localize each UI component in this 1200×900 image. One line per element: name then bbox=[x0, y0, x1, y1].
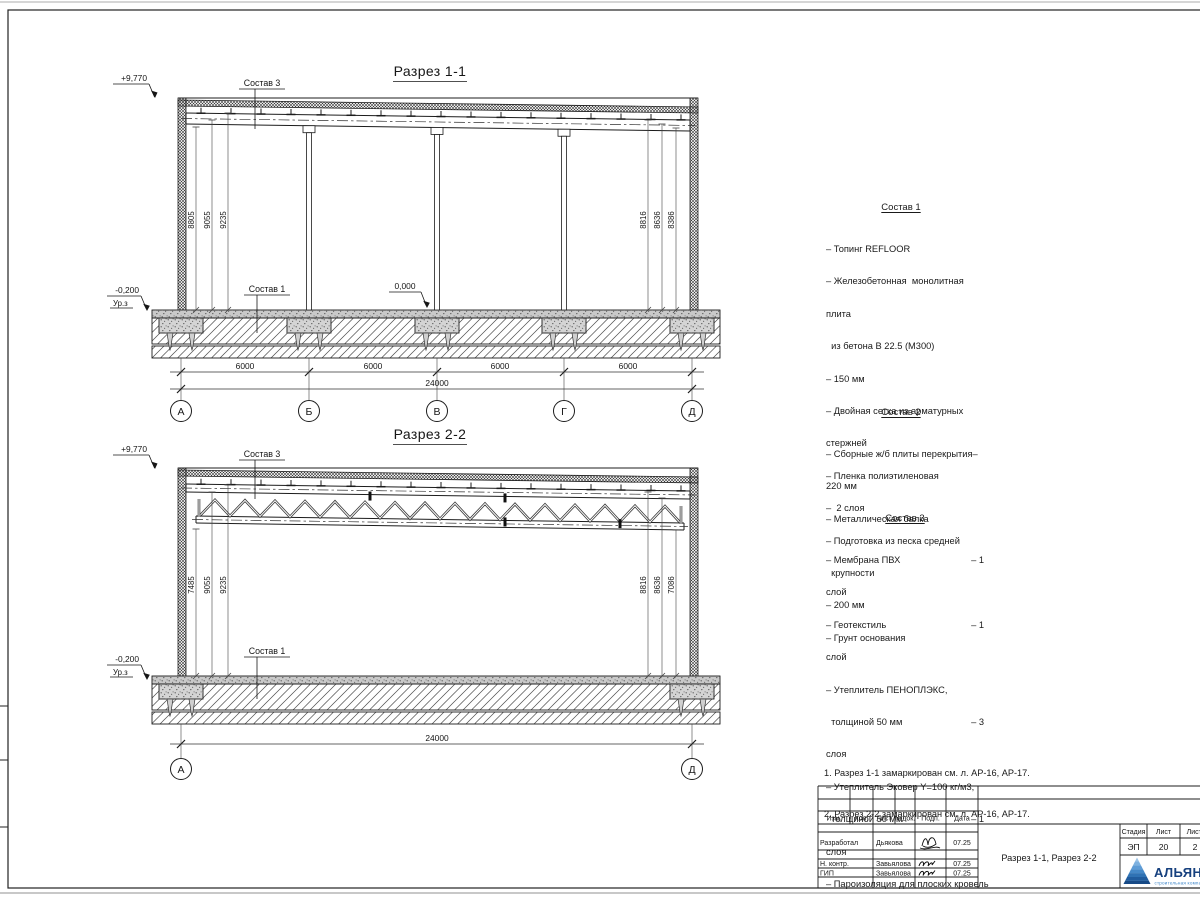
company-subtitle: строительная компания bbox=[1155, 881, 1200, 886]
axis-label: Д bbox=[688, 764, 695, 776]
section-2-title: Разрез 2-2 bbox=[394, 426, 467, 442]
bay-dim: 6000 bbox=[491, 361, 510, 371]
company-name: АЛЬЯНС bbox=[1154, 865, 1200, 880]
sheet-label: Лист bbox=[1156, 829, 1172, 836]
axis-label: В bbox=[433, 406, 440, 418]
elevation-mark-zero: 0,000 bbox=[395, 281, 416, 291]
sostav-3-spec: Состав 3 – Мембрана ПВХ– 1 слой – Геотек… bbox=[826, 492, 984, 900]
spec-line: слой bbox=[826, 652, 984, 663]
company-logo-icon bbox=[1123, 858, 1151, 885]
dim-label: 8636 bbox=[653, 576, 662, 593]
axis-label: Б bbox=[306, 406, 313, 418]
sheet-notes: 1. Разрез 1-1 замаркирован см. л. АР-16,… bbox=[824, 740, 1030, 835]
dim-label: 8386 bbox=[667, 211, 676, 228]
spec-line: из бетона В 22.5 (М300) bbox=[826, 341, 976, 352]
spec-line: слой bbox=[826, 587, 984, 598]
sostav3-callout: Состав 3 bbox=[244, 78, 281, 88]
axis-label: А bbox=[177, 764, 184, 776]
dim-label: 7485 bbox=[187, 576, 196, 594]
elevation-mark-top: +9,770 bbox=[121, 73, 147, 83]
bay-dim: 6000 bbox=[236, 361, 255, 371]
spec-line: – Железобетонная монолитная bbox=[826, 276, 976, 287]
spec-line: – Пароизоляция для плоских кровель bbox=[826, 879, 984, 890]
wall-right bbox=[690, 98, 698, 310]
sheet-value: 20 bbox=[1159, 842, 1169, 852]
sostav1-callout: Состав 1 bbox=[249, 646, 286, 656]
stage-label: Стадия bbox=[1122, 829, 1146, 836]
section-1-1-drawing: Разрез 1-1 +9,770 Состав 3 Состав 1 0,00… bbox=[107, 63, 720, 422]
elevation-mark-minus: -0,200 bbox=[115, 654, 139, 664]
roof-band bbox=[178, 470, 698, 483]
ground-level-label: Ур.з bbox=[113, 299, 128, 308]
elevation-mark-top: +9,770 bbox=[121, 444, 147, 454]
wall-left bbox=[178, 468, 186, 676]
spec-line: – Сборные ж/б плиты перекрытия– bbox=[826, 449, 976, 460]
sostav-3-title: Состав 3 bbox=[826, 514, 984, 525]
wall-right bbox=[690, 468, 698, 676]
dim-label: 8816 bbox=[639, 211, 648, 228]
dim-label: 9235 bbox=[219, 576, 228, 594]
spec-line: слоя bbox=[826, 847, 984, 858]
dim-label: 9235 bbox=[219, 211, 228, 229]
spec-line: – Геотекстиль– 1 bbox=[826, 620, 984, 631]
wall-left bbox=[178, 98, 186, 310]
roof-band bbox=[178, 100, 698, 113]
dim-label: 8816 bbox=[639, 576, 648, 593]
note-line: 1. Разрез 1-1 замаркирован см. л. АР-16,… bbox=[824, 767, 1030, 781]
ground-level-label: Ур.з bbox=[113, 668, 128, 677]
spec-line: толщиной 50 мм– 3 bbox=[826, 717, 984, 728]
dim-label: 9055 bbox=[203, 211, 212, 229]
dim-label: 8805 bbox=[187, 211, 196, 229]
bay-dim: 6000 bbox=[364, 361, 383, 371]
soil-layer-2 bbox=[152, 712, 720, 724]
stage-value: ЭП bbox=[1127, 842, 1139, 852]
sostav1-callout: Состав 1 bbox=[249, 284, 286, 294]
bay-dim: 6000 bbox=[619, 361, 638, 371]
axis-label: Д bbox=[688, 406, 695, 418]
dim-label: 8636 bbox=[653, 211, 662, 228]
total-dim: 24000 bbox=[425, 733, 449, 743]
sostav-2-title: Состав 2 bbox=[826, 408, 976, 419]
elevation-mark-minus: -0,200 bbox=[115, 285, 139, 295]
spec-line: – Утеплитель ПЕНОПЛЭКС, bbox=[826, 685, 984, 696]
soil-layer-2 bbox=[152, 346, 720, 358]
spec-line: – Топинг REFLOOR bbox=[826, 244, 976, 255]
axis-label: А bbox=[177, 406, 184, 418]
section-1-title: Разрез 1-1 bbox=[394, 63, 467, 79]
sostav3-callout: Состав 3 bbox=[244, 449, 281, 459]
spec-line: – Мембрана ПВХ– 1 bbox=[826, 555, 984, 566]
soil-layer bbox=[152, 684, 720, 710]
spec-line: – 150 мм bbox=[826, 374, 976, 385]
axis-label: Г bbox=[561, 406, 567, 418]
note-line: 2. Разрез 2-2 замаркирован см. л. АР-16,… bbox=[824, 808, 1030, 822]
sostav-1-title: Состав 1 bbox=[826, 203, 976, 214]
section-2-2-drawing: Разрез 2-2 +9,770 Состав 3 Состав 1 -0,2… bbox=[107, 426, 720, 780]
spec-line: 220 мм bbox=[826, 481, 976, 492]
sheets-value: 2 bbox=[1193, 842, 1198, 852]
dim-label: 7086 bbox=[667, 576, 676, 593]
spec-line: плита bbox=[826, 309, 976, 320]
sheets-label: Листов bbox=[1187, 829, 1200, 836]
dim-label: 9055 bbox=[203, 576, 212, 594]
drawing-title: Разрез 1-1, Разрез 2-2 bbox=[1001, 853, 1096, 863]
